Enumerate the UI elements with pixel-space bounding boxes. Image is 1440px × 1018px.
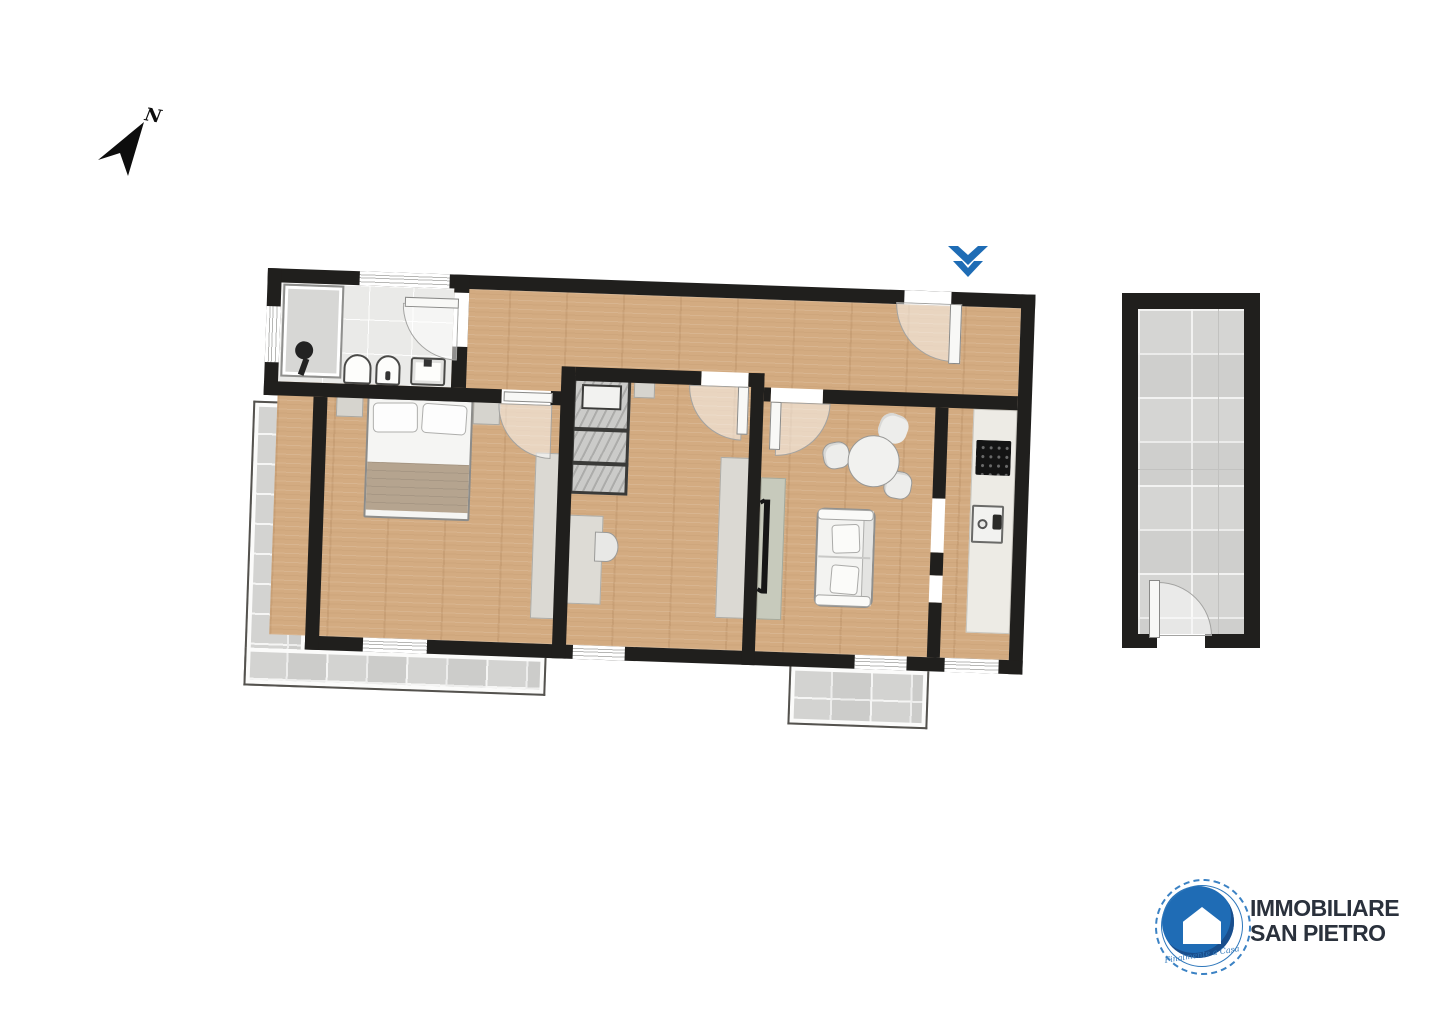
living-window bbox=[854, 655, 906, 671]
washbasin-faucet bbox=[424, 359, 432, 366]
kitchen-pass-through bbox=[929, 575, 943, 602]
single-bed-pillow bbox=[581, 384, 622, 410]
nightstand-right bbox=[473, 401, 501, 425]
sofa-armrest bbox=[815, 594, 871, 607]
annex-door-opening bbox=[1157, 634, 1205, 648]
kitchen-window bbox=[944, 658, 998, 674]
toilet bbox=[343, 354, 372, 385]
wall-kitchen-b bbox=[930, 552, 944, 575]
bed-blanket bbox=[366, 462, 470, 514]
annex-door bbox=[1149, 580, 1160, 638]
agency-name-line2: SAN PIETRO bbox=[1250, 921, 1399, 946]
agency-logo: Finalmente a Casa IMMOBILIARE SAN PIETRO bbox=[1158, 882, 1398, 974]
sink-faucet bbox=[992, 514, 1002, 529]
entrance-marker double-chevron-down-icon bbox=[946, 244, 990, 292]
compass-label: N bbox=[142, 104, 164, 128]
shower bbox=[280, 284, 344, 379]
floor-plan-canvas: N bbox=[0, 0, 1440, 1018]
annex-floor-seam-h bbox=[1138, 469, 1244, 470]
annex-floor-seam-v bbox=[1218, 309, 1219, 634]
apartment-floor-plan bbox=[255, 268, 1036, 675]
living-door bbox=[769, 402, 782, 450]
bedroom2-window bbox=[573, 645, 625, 661]
pillow bbox=[373, 403, 418, 433]
sofa-pillow bbox=[831, 524, 860, 554]
bedroom2-door bbox=[736, 386, 749, 434]
north-arrow-icon: N bbox=[84, 96, 180, 192]
sofa-armrest bbox=[818, 508, 874, 521]
kitchen-pass-through bbox=[930, 498, 945, 552]
wall-kitchen-c bbox=[927, 602, 942, 657]
balcony bbox=[787, 666, 929, 729]
bedroom-door bbox=[503, 391, 552, 403]
bedroom-window bbox=[363, 638, 427, 654]
annex-room bbox=[1122, 293, 1260, 648]
bathroom-window bbox=[265, 306, 281, 362]
bathroom-door bbox=[405, 297, 459, 309]
bidet bbox=[375, 355, 401, 386]
pillow bbox=[421, 403, 468, 436]
sofa-pillow bbox=[829, 564, 859, 595]
entrance-door bbox=[948, 304, 962, 364]
bidet-faucet bbox=[385, 371, 390, 380]
agency-name-line1: IMMOBILIARE bbox=[1250, 896, 1399, 921]
cooktop bbox=[975, 440, 1011, 476]
agency-name: IMMOBILIARE SAN PIETRO bbox=[1250, 896, 1399, 946]
